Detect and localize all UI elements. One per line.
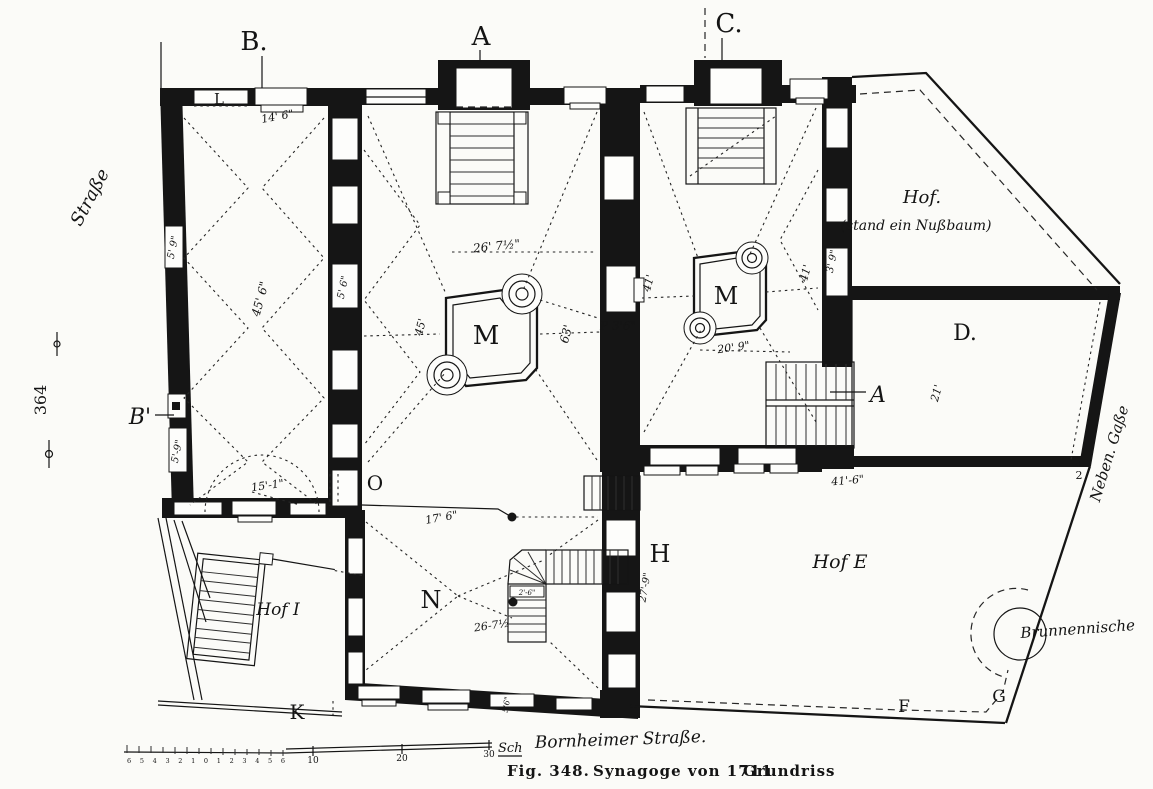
room-label-k: K (290, 700, 306, 724)
stair-double-run (766, 362, 866, 448)
dim-room-n-width: 26-7½ (472, 617, 510, 635)
dim-room-d: 21' (928, 383, 945, 404)
walls (160, 60, 1121, 719)
room-label-n: N (421, 586, 442, 614)
courtyard-hof-label: Hof. (902, 187, 941, 208)
dim-stair-width: 2'-6" (518, 589, 535, 597)
dim-right-hall-left: 41' (640, 273, 657, 294)
dim-room-n-top: 17' 6" (424, 508, 458, 526)
dim-hall-length: 63' (557, 323, 575, 345)
room-label-d: D. (953, 321, 977, 346)
scale-tick-10: 10 (307, 756, 319, 766)
dotted-construction-lines (184, 108, 1100, 716)
room-label-h: H (650, 540, 671, 568)
section-label-b-prime: B' (128, 405, 151, 430)
floorplan-drawing: B. A C. B' L M M D. O N H K F G 2 A 364 … (0, 0, 1153, 789)
scale-minor-labels: 6 5 4 3 2 1 0 1 2 3 4 5 6 (127, 757, 285, 765)
dim-hall-west: 45' (412, 317, 429, 338)
stair-porch-a (436, 112, 528, 204)
street-label-bottom: Bornheimer Straße. (533, 727, 706, 753)
corner-label-2: 2 (1076, 469, 1083, 482)
dim-left-room-length: 45' 6" (249, 280, 272, 319)
stair-script-label: A (868, 383, 886, 408)
scale-tick-30: 30 (483, 750, 495, 760)
courtyard-e-label: Hof E (812, 551, 868, 573)
scale-bar (124, 740, 522, 756)
dim-pillar: P 3'6" (599, 319, 636, 333)
bimah-label-right: M (714, 282, 739, 310)
dim-bimah-right: 20' 9" (715, 339, 750, 357)
room-label-l: L (214, 90, 224, 108)
section-label-b: B. (240, 27, 267, 57)
courtyard-i-label: Hof I (255, 600, 300, 620)
section-label-a: A (471, 22, 492, 52)
scanned-floorplan-page: B. A C. B' L M M D. O N H K F G 2 A 364 … (0, 0, 1153, 789)
dim-right-hall-right: 41' (797, 263, 814, 284)
street-label-left: Straße (66, 165, 113, 229)
point-label-g: G (992, 687, 1006, 707)
stair-porch-c (686, 108, 776, 184)
dim-hall-width: 26' 7½" (471, 237, 520, 256)
section-label-c: C. (715, 9, 742, 39)
well-niche-label: Brunnennische (1019, 616, 1136, 642)
dim-hof-e-top: 41'-6" (830, 473, 865, 489)
scale-unit: Sch (498, 741, 523, 756)
courtyard-hof-note: (stand ein Nußbaum) (841, 218, 992, 234)
page-number: 364 (31, 385, 50, 416)
caption-fig-number: Fig. 348. (507, 762, 590, 780)
bimah-label-main: M (473, 321, 500, 351)
point-label-f: F (898, 697, 910, 717)
dim-hof-i-top: 15'-1" (250, 477, 284, 494)
column-dot-bottom (509, 598, 518, 607)
caption-type: Grundriss (743, 762, 836, 780)
figure-caption: Fig. 348. Synagoge von 1711 Grundriss (507, 762, 836, 780)
room-label-o: O (367, 471, 383, 495)
column-dot-top (508, 513, 517, 522)
scale-tick-20: 20 (396, 754, 408, 764)
